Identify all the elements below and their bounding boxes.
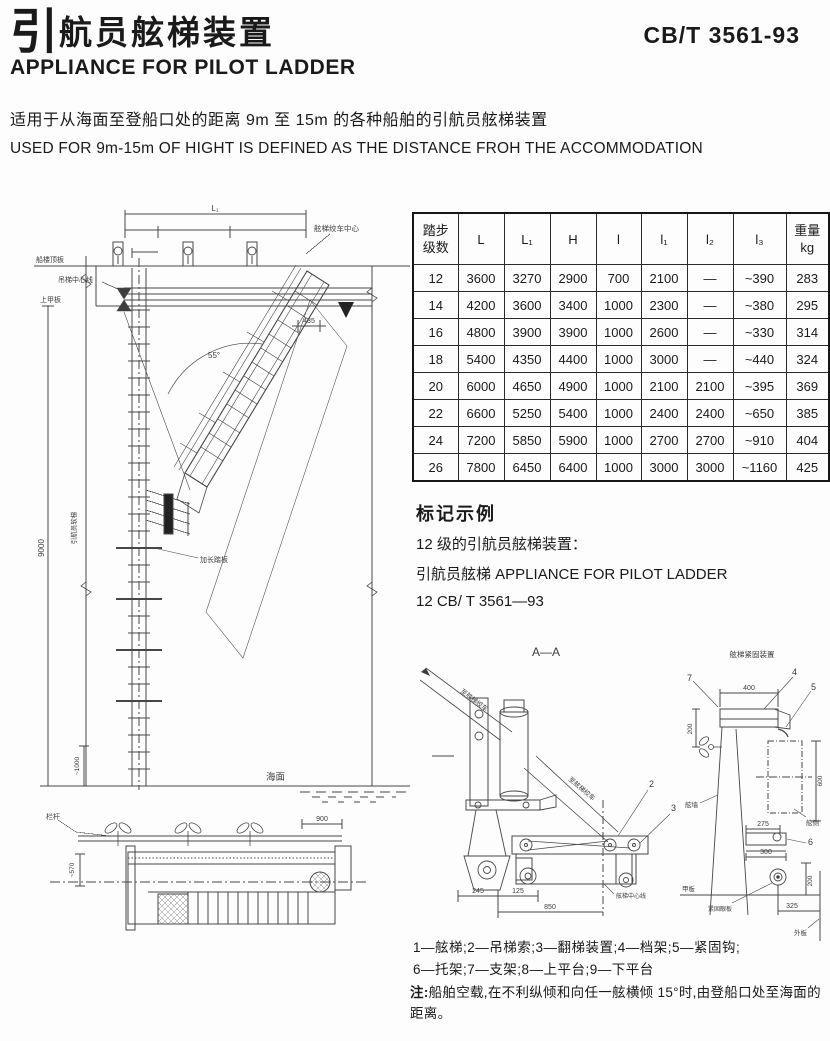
dim-9000-label: 9000 <box>37 539 46 557</box>
dim-1000-label: ~1000 <box>74 756 81 775</box>
col-header-l3: l₃ <box>733 213 786 265</box>
table-row: 1442003600340010002300—~380295 <box>413 292 829 319</box>
table-cell: 18 <box>413 346 458 373</box>
table-cell: 1000 <box>596 373 641 400</box>
table-row: 26780064506400100030003000~1160425 <box>413 454 829 482</box>
section-aa-drawing: A—A 至舷梯绞车 至舷梯绞车 2 3 245 125 850 舷梯中心线 <box>420 640 682 936</box>
upper-deck-label: 上甲板 <box>40 295 61 304</box>
table-cell: 5400 <box>458 346 504 373</box>
table-cell: 1000 <box>596 427 641 454</box>
rail-label: 栏杆 <box>46 812 60 821</box>
table-cell: ~910 <box>733 427 786 454</box>
dimension-table: 踏步级数 L L₁ H l l₁ l₂ l₃ 重量kg 123600327029… <box>412 212 830 482</box>
table-cell: — <box>687 319 733 346</box>
table-cell: 24 <box>413 427 458 454</box>
table-cell: ~1160 <box>733 454 786 482</box>
table-cell: 22 <box>413 400 458 427</box>
table-cell: 2100 <box>687 373 733 400</box>
footnote-prefix: 注: <box>410 985 429 1000</box>
table-cell: 700 <box>596 265 641 292</box>
callout-3: 3 <box>671 803 676 813</box>
table-cell: 369 <box>786 373 829 400</box>
table-cell: 6600 <box>458 400 504 427</box>
dim-200-right-label: 200 <box>807 875 814 886</box>
table-cell: 5400 <box>550 400 596 427</box>
table-cell: 12 <box>413 265 458 292</box>
table-cell: 2300 <box>641 292 687 319</box>
table-cell: 26 <box>413 454 458 482</box>
table-cell: 385 <box>786 400 829 427</box>
col-header-l: l <box>596 213 641 265</box>
table-cell: 7200 <box>458 427 504 454</box>
main-elevation-drawing: L₁ 舷梯绞车中心 船楼顶板 上甲板 吊梯中心线 55° 435 9000 引航… <box>0 198 410 938</box>
table-cell: — <box>687 292 733 319</box>
page-title-rest: 航员舷梯装置 <box>59 14 275 51</box>
side-label: 舷侧 <box>806 818 819 827</box>
page-title: 引航员舷梯装置 <box>10 6 275 57</box>
scope-text-zh: 适用于从海面至登船口处的距离 9m 至 15m 的各种船舶的引航员舷梯装置 <box>10 106 548 130</box>
dim-275-label: 275 <box>757 821 769 828</box>
table-cell: 6400 <box>550 454 596 482</box>
dim-325-label: 325 <box>786 903 798 910</box>
bulwark-label: 舷墙 <box>685 800 699 809</box>
table-row: 1854004350440010003000—~440324 <box>413 346 829 373</box>
table-cell: 1000 <box>596 292 641 319</box>
top-deck-label: 船楼顶板 <box>36 255 64 264</box>
table-cell: ~650 <box>733 400 786 427</box>
table-cell: 6450 <box>504 454 550 482</box>
section-aa-title: A—A <box>532 645 560 659</box>
col-header-H: H <box>550 213 596 265</box>
dim-245-label: 245 <box>472 888 484 895</box>
table-cell: 1000 <box>596 319 641 346</box>
table-cell: 2600 <box>641 319 687 346</box>
table-cell: ~380 <box>733 292 786 319</box>
ladder-centerline-label: 舷梯中心线 <box>616 892 646 900</box>
dim-L1-label: L₁ <box>211 204 218 213</box>
table-cell: 324 <box>786 346 829 373</box>
table-cell: 20 <box>413 373 458 400</box>
table-cell: ~440 <box>733 346 786 373</box>
table-cell: 295 <box>786 292 829 319</box>
table-cell: 2100 <box>641 373 687 400</box>
table-cell: 425 <box>786 454 829 482</box>
pilot-rope-label: 引航员软梯 <box>69 511 78 544</box>
marking-example-line3: 12 CB/ T 3561—93 <box>416 593 544 610</box>
dim-200-left-label: 200 <box>687 723 694 734</box>
marking-example-line1: 12 级的引航员舷梯装置： <box>416 533 587 554</box>
table-cell: ~395 <box>733 373 786 400</box>
winch-center-label: 舷梯绞车中心 <box>314 223 359 233</box>
col-header-steps: 踏步级数 <box>413 213 458 265</box>
table-cell: 6000 <box>458 373 504 400</box>
page-title-english: APPLIANCE FOR PILOT LADDER <box>10 56 356 80</box>
securing-device-title: 舷梯紧固装置 <box>730 649 775 659</box>
callout-6: 6 <box>808 837 813 847</box>
table-cell: 314 <box>786 319 829 346</box>
table-cell: — <box>687 346 733 373</box>
marking-example-heading: 标记示例 <box>416 500 496 526</box>
to-winch-label-1: 至舷梯绞车 <box>459 686 491 713</box>
table-row: 24720058505900100027002700~910404 <box>413 427 829 454</box>
dim-600-label: 600 <box>817 775 824 786</box>
table-cell: 3000 <box>641 346 687 373</box>
table-cell: 2100 <box>641 265 687 292</box>
table-cell: 1000 <box>596 400 641 427</box>
scope-text-en: USED FOR 9m-15m OF HIGHT IS DEFINED AS T… <box>10 140 703 158</box>
footnote: 注:船舶空载,在不利纵倾和向任一舷横倾 15°时,由登船口处至海面的距离。 <box>410 982 830 1024</box>
col-header-L: L <box>458 213 504 265</box>
table-cell: 2400 <box>687 400 733 427</box>
angle-55-label: 55° <box>208 351 220 360</box>
col-header-weight: 重量kg <box>786 213 829 265</box>
table-body: 123600327029007002100—~39028314420036003… <box>413 265 829 482</box>
document-page: 引航员舷梯装置 CB/T 3561-93 APPLIANCE FOR PILOT… <box>0 0 830 1041</box>
table-row: 20600046504900100021002100~395369 <box>413 373 829 400</box>
table-cell: — <box>687 265 733 292</box>
dim-435-label: 435 <box>303 318 315 325</box>
table-cell: 3600 <box>504 292 550 319</box>
securing-device-drawing: 舷梯紧固装置 7 4 5 6 400 200 600 275 300 200 3… <box>680 645 830 945</box>
table-cell: 2700 <box>641 427 687 454</box>
table-row: 22660052505400100024002400~650385 <box>413 400 829 427</box>
parts-legend-line2: 6—托架;7—支架;8—上平台;9—下平台 <box>413 958 654 978</box>
parts-legend-line1: 1—舷梯;2—吊梯索;3—翻梯装置;4—档架;5—紧固钩; <box>413 936 740 956</box>
col-header-L1: L₁ <box>504 213 550 265</box>
sea-surface-label: 海面 <box>266 771 285 783</box>
table-row: 123600327029007002100—~390283 <box>413 265 829 292</box>
table-cell: 2700 <box>687 427 733 454</box>
table-cell: 4400 <box>550 346 596 373</box>
table-cell: 5850 <box>504 427 550 454</box>
table-cell: 4650 <box>504 373 550 400</box>
callout-4: 4 <box>792 667 797 677</box>
table-cell: 3000 <box>687 454 733 482</box>
dim-900-label: 900 <box>316 816 328 823</box>
table-cell: 1000 <box>596 346 641 373</box>
table-cell: 283 <box>786 265 829 292</box>
marking-example-line2: 引航员舷梯 APPLIANCE FOR PILOT LADDER <box>416 563 727 584</box>
table-cell: 4200 <box>458 292 504 319</box>
page-title-first-char: 引 <box>10 6 59 59</box>
table-header-row: 踏步级数 L L₁ H l l₁ l₂ l₃ 重量kg <box>413 213 829 265</box>
col-header-l2: l₂ <box>687 213 733 265</box>
callout-2: 2 <box>649 779 654 789</box>
table-cell: 3900 <box>550 319 596 346</box>
table-cell: 3400 <box>550 292 596 319</box>
col-header-l1: l₁ <box>641 213 687 265</box>
table-cell: 4800 <box>458 319 504 346</box>
dim-570-label: ~570 <box>69 862 76 877</box>
table-cell: 14 <box>413 292 458 319</box>
table-cell: 404 <box>786 427 829 454</box>
table-cell: 3000 <box>641 454 687 482</box>
callout-7: 7 <box>687 673 692 683</box>
footnote-text: 船舶空载,在不利纵倾和向任一舷横倾 15°时,由登船口处至海面的距离。 <box>410 985 821 1021</box>
table-cell: 3900 <box>504 319 550 346</box>
table-cell: 2400 <box>641 400 687 427</box>
callout-5: 5 <box>811 682 816 692</box>
table-cell: ~390 <box>733 265 786 292</box>
table-cell: 1000 <box>596 454 641 482</box>
eye-plate-label: 紧固眼板 <box>708 905 732 913</box>
table-cell: 2900 <box>550 265 596 292</box>
table-cell: 5250 <box>504 400 550 427</box>
table-cell: ~330 <box>733 319 786 346</box>
table-cell: 16 <box>413 319 458 346</box>
table-cell: 7800 <box>458 454 504 482</box>
dim-300-label: 300 <box>760 849 772 856</box>
table-cell: 3270 <box>504 265 550 292</box>
dim-400-label: 400 <box>743 685 755 692</box>
standard-number: CB/T 3561-93 <box>644 22 800 49</box>
spreader-step-label: 加长踏板 <box>200 555 228 564</box>
hoist-centerline-label: 吊梯中心线 <box>58 275 93 284</box>
table-cell: 4900 <box>550 373 596 400</box>
dim-850-label: 850 <box>544 904 556 911</box>
table-row: 1648003900390010002600—~330314 <box>413 319 829 346</box>
table-cell: 4350 <box>504 346 550 373</box>
deck-label: 甲板 <box>682 884 696 893</box>
shell-label: 外板 <box>794 928 808 937</box>
table-cell: 3600 <box>458 265 504 292</box>
dim-125-label: 125 <box>512 888 524 895</box>
table-cell: 5900 <box>550 427 596 454</box>
